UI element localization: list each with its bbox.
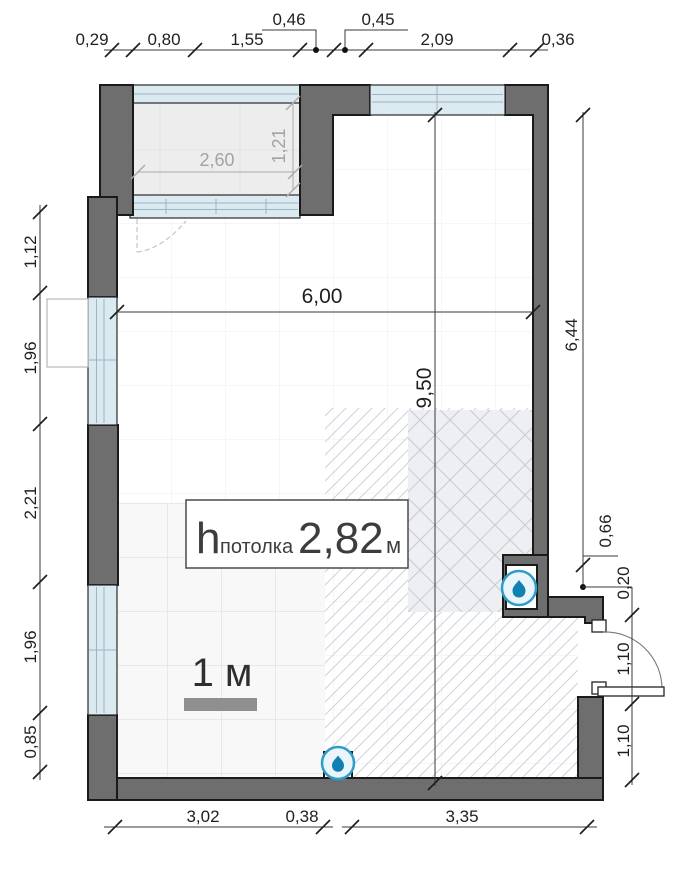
scale-bar: 1 м <box>184 651 257 711</box>
dim-bottom-302: 3,02 <box>186 807 219 826</box>
dim-room-width: 6,00 <box>302 285 343 308</box>
dim-top-155: 1,55 <box>230 30 263 49</box>
ceiling-value: 2,82 <box>298 514 384 563</box>
ceiling-symbol: h <box>196 514 220 563</box>
dim-right-066: 0,66 <box>596 514 615 547</box>
window-sill-box <box>47 299 88 367</box>
dim-right-020: 0,20 <box>614 566 633 599</box>
wall-left-upper <box>88 197 117 297</box>
entry-door-leaf <box>598 687 664 696</box>
dim-leader-046 <box>262 30 316 50</box>
water-drop-icon <box>322 747 354 779</box>
dim-left-196a: 1,96 <box>21 341 40 374</box>
ceiling-height-box: h потолка 2,82 м <box>186 500 408 568</box>
dim-top-029: 0,29 <box>75 30 108 49</box>
dim-bottom-038: 0,38 <box>285 807 318 826</box>
scale-bar-label: 1 м <box>192 651 253 695</box>
dim-dot <box>313 47 319 53</box>
water-drop-icon <box>502 571 536 605</box>
balcony-window-inner <box>130 195 300 218</box>
dim-top-046: 0,46 <box>272 10 305 29</box>
ceiling-unit: м <box>386 533 401 558</box>
dim-leader-045 <box>345 30 408 50</box>
dim-balcony-width: 2,60 <box>199 150 234 170</box>
dim-right-110a: 1,10 <box>614 642 633 675</box>
dim-top-036: 0,36 <box>541 30 574 49</box>
scale-bar-rect <box>184 698 257 711</box>
dim-left-221: 2,21 <box>21 486 40 519</box>
dim-dot <box>342 47 348 53</box>
wall-left-lower <box>88 715 117 800</box>
ceiling-subscript: потолка <box>220 536 294 558</box>
dim-left-085: 0,85 <box>21 725 40 758</box>
dim-top-209: 2,09 <box>420 30 453 49</box>
dim-room-depth: 9,50 <box>413 368 436 409</box>
dim-left-112: 1,12 <box>21 235 40 268</box>
floor-plan: 0,29 0,80 1,55 0,46 0,45 2,09 0,36 1,12 … <box>0 0 688 880</box>
dim-right-110b: 1,10 <box>614 724 633 757</box>
wall-left-middle <box>88 425 118 585</box>
floor-plan-canvas: 0,29 0,80 1,55 0,46 0,45 2,09 0,36 1,12 … <box>0 0 688 880</box>
entry-door-jamb-top <box>592 620 606 632</box>
dim-balcony-depth: 1,21 <box>269 128 289 163</box>
dim-top-080: 0,80 <box>147 30 180 49</box>
dim-left-196b: 1,96 <box>21 630 40 663</box>
wall-bottom <box>88 778 603 800</box>
dim-bottom-335: 3,35 <box>445 807 478 826</box>
wall-balcony-left-pier <box>100 85 133 215</box>
dim-top-045: 0,45 <box>361 10 394 29</box>
dim-right-644: 6,44 <box>562 318 581 351</box>
